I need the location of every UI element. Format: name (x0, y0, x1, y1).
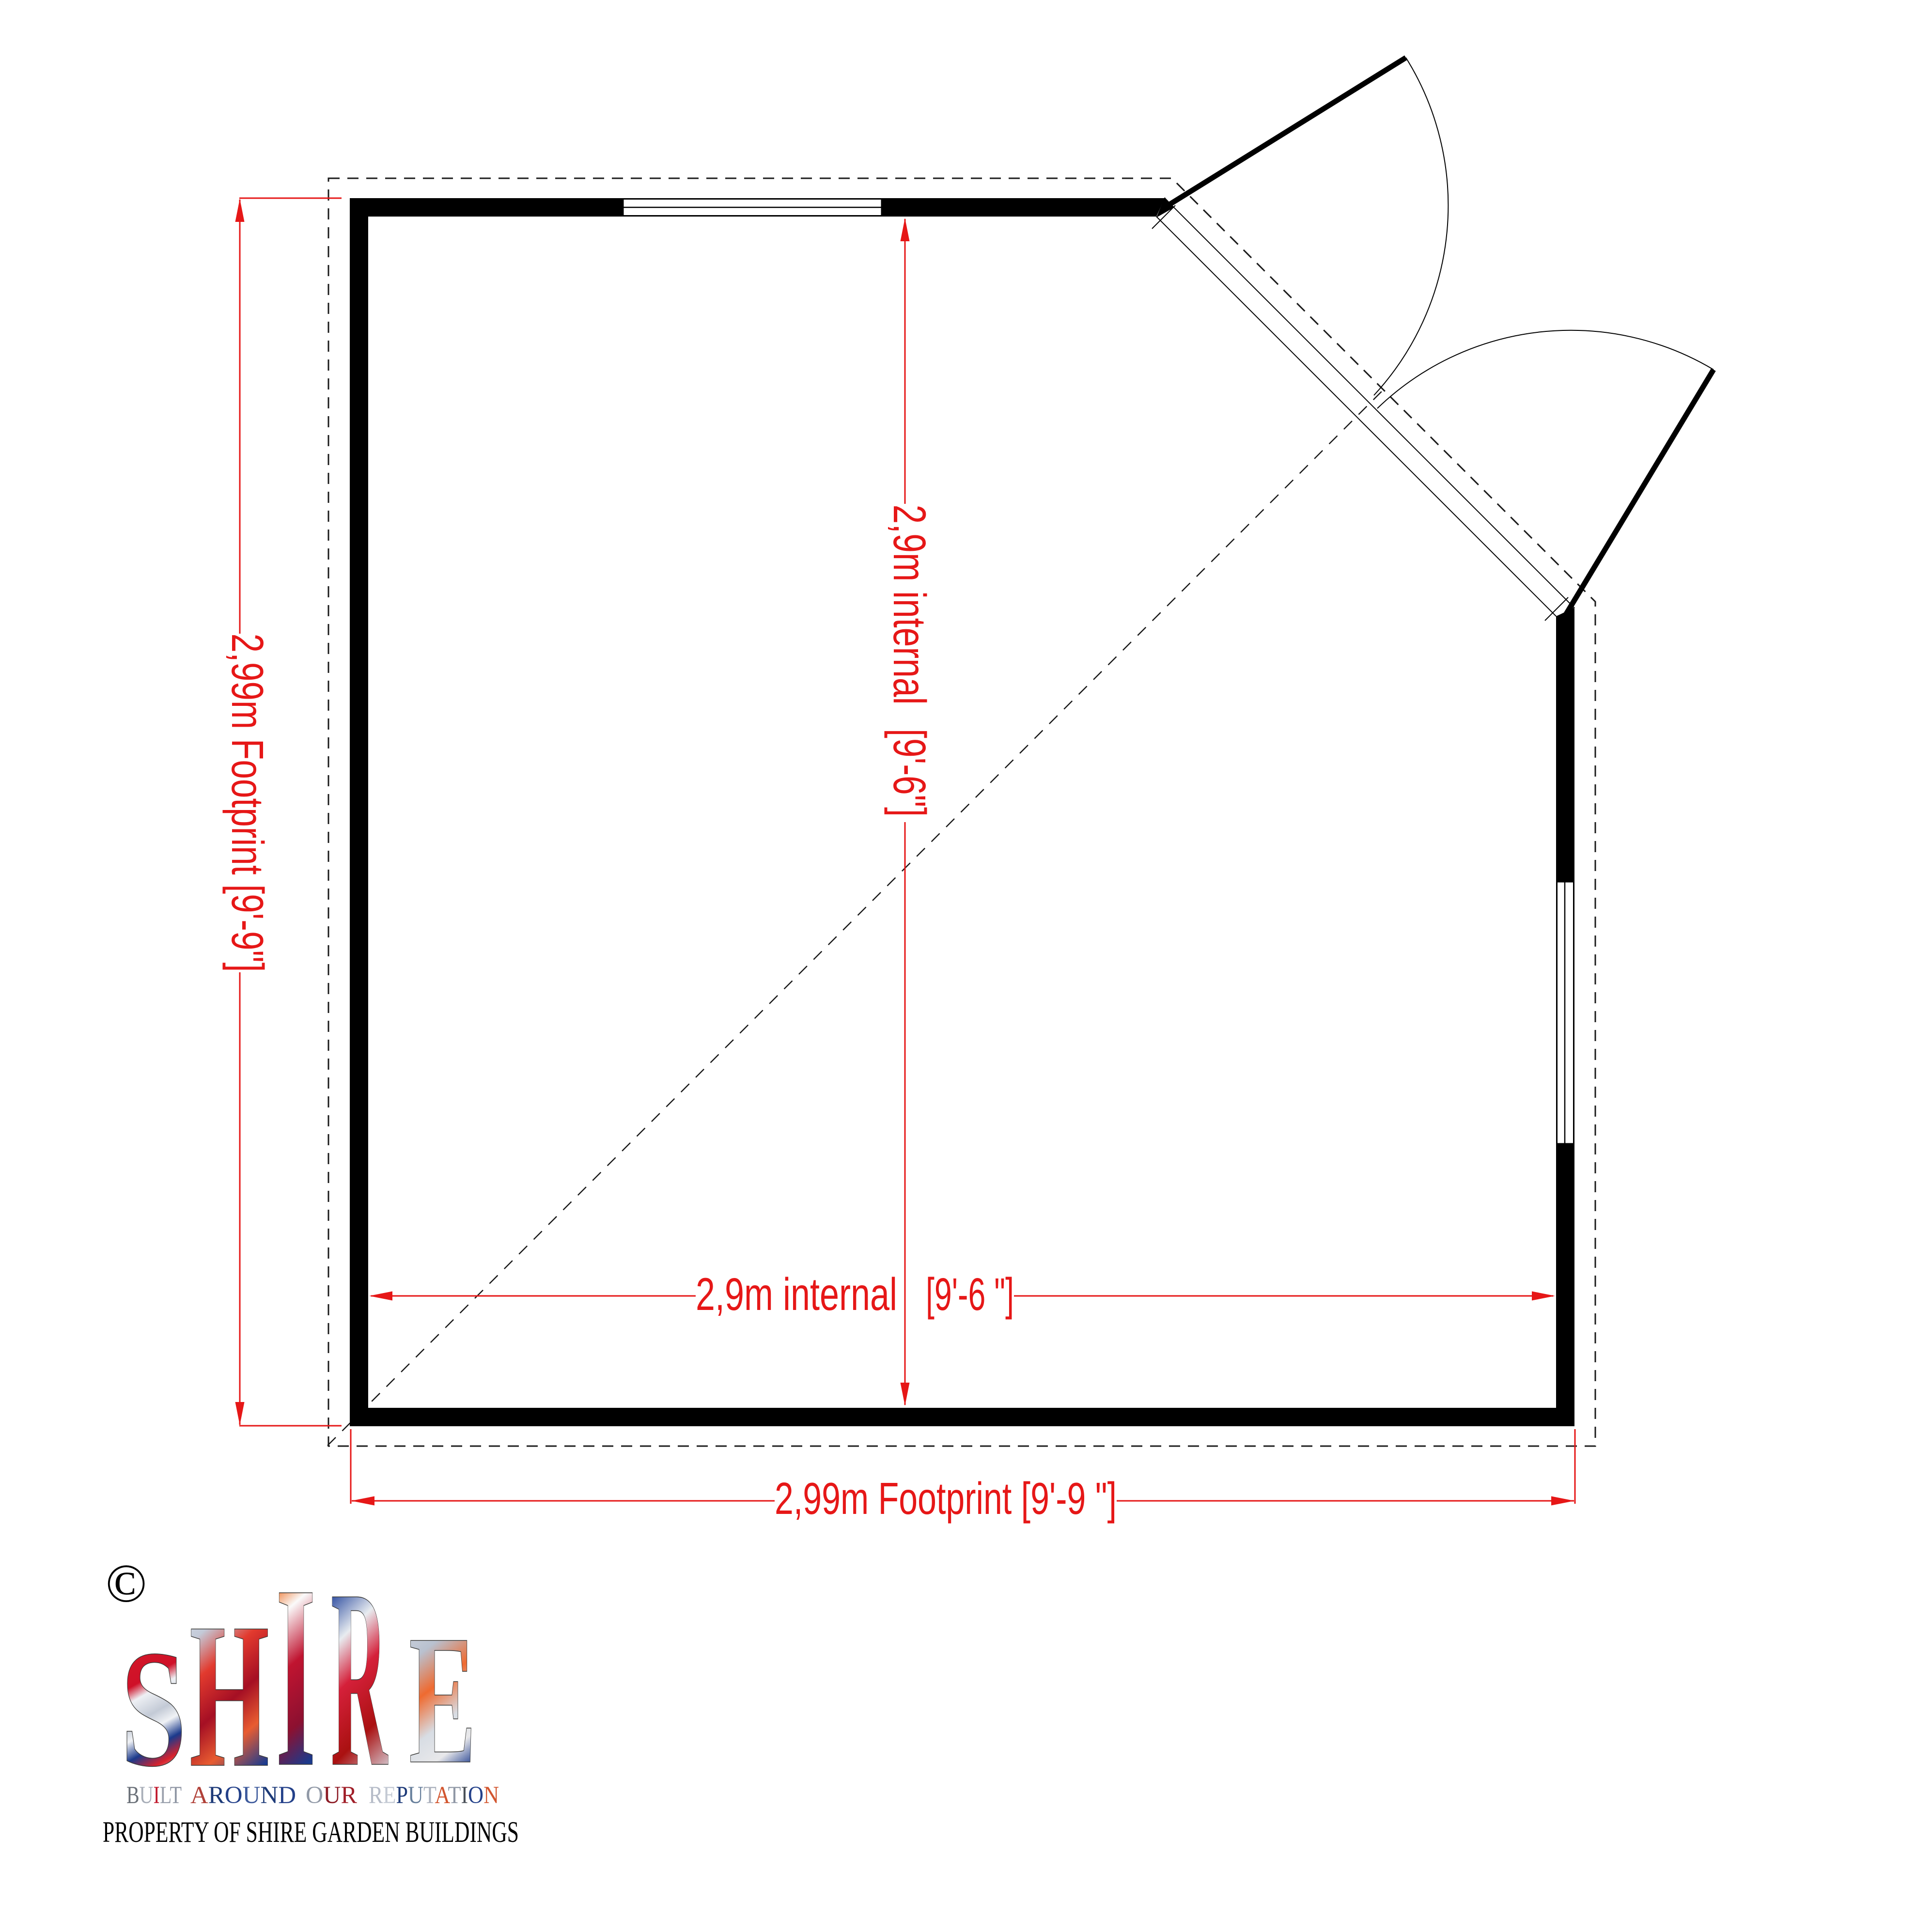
svg-text:©: © (106, 1554, 147, 1614)
svg-text:BUILT: BUILT (126, 1782, 182, 1809)
svg-text:R: R (331, 1537, 389, 1820)
svg-text:2,9m internal: 2,9m internal (696, 1269, 897, 1320)
svg-text:S: S (121, 1616, 187, 1801)
svg-text:AROUND: AROUND (190, 1782, 296, 1809)
svg-text:2,99m Footprint [9'-9"]: 2,99m Footprint [9'-9"] (222, 634, 273, 972)
svg-text:H: H (189, 1580, 269, 1811)
svg-text:E: E (409, 1597, 476, 1802)
svg-text:REPUTATION: REPUTATION (369, 1782, 499, 1809)
svg-text:[9'-6 "]: [9'-6 "] (926, 1269, 1014, 1320)
svg-text:[9'-6"]: [9'-6"] (884, 729, 935, 817)
svg-text:PROPERTY OF SHIRE GARDEN BUILD: PROPERTY OF SHIRE GARDEN BUILDINGS (103, 1816, 519, 1849)
svg-text:2,9m internal: 2,9m internal (884, 505, 935, 705)
svg-text:2,99m Footprint [9'-9 "]: 2,99m Footprint [9'-9 "] (775, 1473, 1117, 1524)
svg-text:OUR: OUR (306, 1782, 357, 1809)
svg-text:I: I (276, 1531, 316, 1822)
